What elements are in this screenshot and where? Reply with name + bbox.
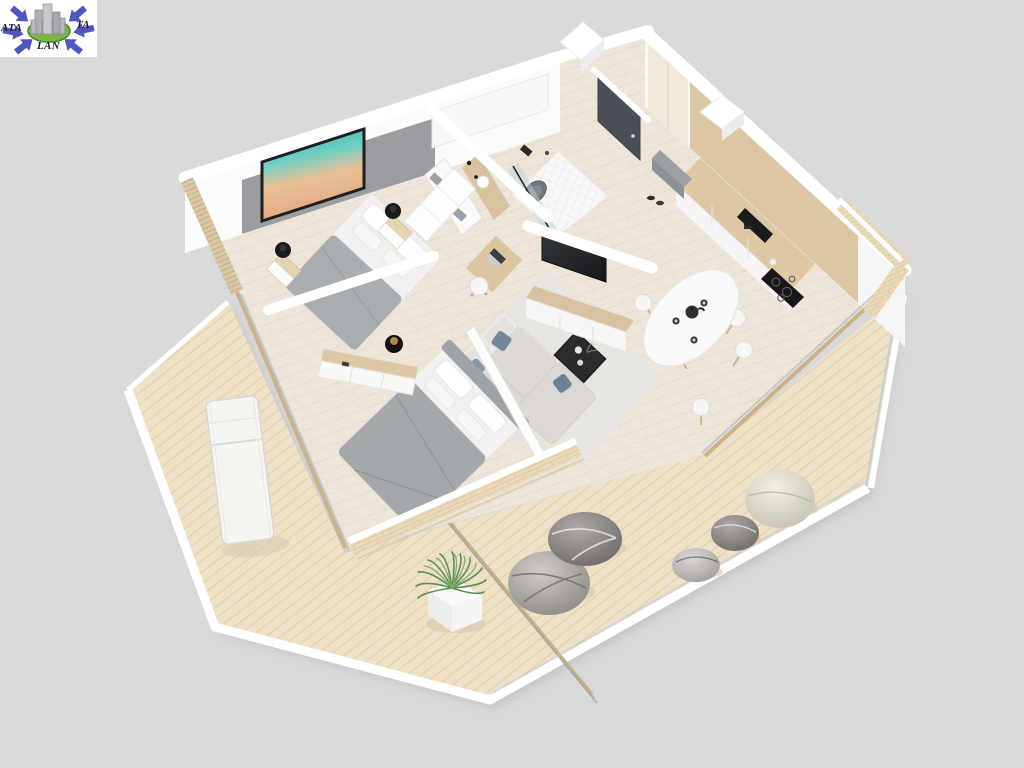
- logo-text-bottom: LAN: [37, 40, 60, 52]
- basin: [477, 176, 489, 188]
- vanity-tap: [474, 175, 478, 179]
- kettle: [770, 259, 777, 266]
- logo-buildings-icon: [31, 4, 65, 34]
- toilet-roll-holder: [545, 151, 549, 155]
- floor-plan-render: [0, 0, 1024, 768]
- soap-bottle: [467, 161, 471, 165]
- shoes: [647, 196, 655, 200]
- shoes: [656, 201, 664, 205]
- render-canvas: ATA TA LAN: [0, 0, 1024, 768]
- table-lamp: [275, 242, 291, 258]
- logo-text-left: ATA: [1, 22, 22, 34]
- brand-watermark: ATA TA LAN: [0, 0, 97, 57]
- table-lamp: [385, 335, 403, 353]
- logo-text-right: TA: [76, 19, 90, 31]
- door-handle: [631, 134, 635, 138]
- table-lamp: [385, 203, 401, 219]
- coffee-maker: [744, 220, 752, 229]
